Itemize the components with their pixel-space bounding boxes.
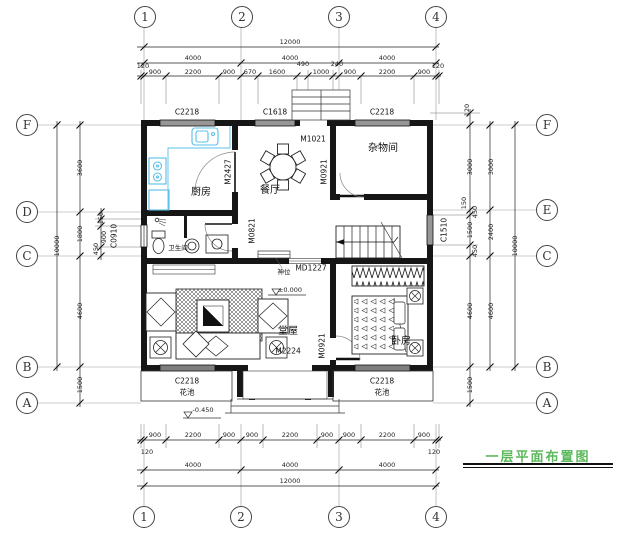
kitchen-corner-unit bbox=[149, 190, 169, 210]
dim-right-detail: 120 bbox=[464, 104, 471, 116]
axis-bubble-bottom-3: 3 bbox=[328, 506, 350, 528]
room-label-hall: 堂屋 bbox=[278, 327, 298, 337]
front-porch bbox=[225, 371, 345, 413]
label-door-m0921-bedroom: M0921 bbox=[318, 333, 326, 359]
window-c2218-bottom-left bbox=[160, 365, 215, 371]
dim-top-detail: 120 bbox=[137, 63, 149, 70]
toilet-tank bbox=[152, 231, 165, 238]
dim-top-axis: 4000 bbox=[282, 55, 299, 62]
dim-top-detail: 900 bbox=[418, 69, 430, 76]
stairs bbox=[336, 222, 402, 258]
window-c1510-right bbox=[427, 215, 433, 245]
dim-left-detail: 150 bbox=[98, 212, 105, 224]
label-window-c2218-top-left: C2218 bbox=[175, 108, 199, 116]
drawing-title-underline bbox=[463, 463, 613, 468]
dim-bottom-detail: 900 bbox=[343, 432, 355, 439]
dim-right-detail: 1500 bbox=[467, 377, 474, 394]
axis-bubble-right-a: A bbox=[536, 392, 558, 414]
dim-bottom-detail: 2200 bbox=[282, 432, 299, 439]
dim-top-detail: 2200 bbox=[185, 69, 202, 76]
toilet bbox=[153, 239, 164, 254]
dim-left-detail: 450 bbox=[93, 243, 100, 255]
dim-left-overall: 10000 bbox=[54, 236, 61, 257]
wardrobe bbox=[352, 266, 424, 286]
dim-right-detail: 1500 bbox=[467, 222, 474, 239]
dim-top-detail: 490 bbox=[297, 61, 309, 68]
room-label-bedroom: 卧房 bbox=[391, 337, 411, 347]
dim-bottom-detail: 900 bbox=[246, 432, 258, 439]
label-flower-bed-left: 花池 bbox=[180, 388, 195, 396]
label-window-c0910: C0910 bbox=[110, 224, 118, 248]
dim-top-detail: 240 bbox=[331, 61, 343, 68]
dim-right-detail: 450 bbox=[472, 206, 479, 218]
dim-left-detail: 900 bbox=[101, 231, 108, 243]
dim-top-detail: 900 bbox=[149, 69, 161, 76]
dim-bottom-edge: 120 bbox=[141, 449, 153, 456]
dim-bottom-detail: 900 bbox=[321, 432, 333, 439]
dim-bottom-detail: 900 bbox=[149, 432, 161, 439]
label-door-m2427: M2427 bbox=[224, 159, 232, 185]
axis-bubble-top-4: 4 bbox=[425, 6, 447, 28]
label-flower-bed-right: 花池 bbox=[375, 388, 390, 396]
shower-head bbox=[155, 218, 159, 222]
label-window-c2218-top-right: C2218 bbox=[370, 108, 394, 116]
living-room-furniture bbox=[146, 265, 288, 359]
label-window-c1618-top: C1618 bbox=[263, 108, 287, 116]
axis-bubble-top-1: 1 bbox=[134, 6, 156, 28]
plan-drawing bbox=[0, 0, 640, 558]
label-window-c2218-bottom-right: C2218 bbox=[370, 377, 394, 385]
dim-top-detail: 1000 bbox=[313, 69, 330, 76]
plant-left bbox=[150, 337, 171, 358]
dim-right-axis: 4600 bbox=[488, 303, 495, 320]
room-label-dining: 餐厅 bbox=[260, 186, 280, 196]
window-c2218-top-right bbox=[355, 120, 410, 126]
label-window-c1510: C1510 bbox=[440, 218, 448, 242]
dim-top-detail: 900 bbox=[344, 69, 356, 76]
dim-right-detail: 150 bbox=[461, 197, 468, 209]
dim-bottom-detail: 900 bbox=[223, 432, 235, 439]
label-shrine: 神位 bbox=[278, 269, 291, 276]
dim-bottom-axis: 4000 bbox=[185, 462, 202, 469]
label-door-md1227: MD1227 bbox=[295, 264, 326, 272]
room-label-kitchen: 厨房 bbox=[191, 188, 211, 198]
bedroom-furniture bbox=[352, 266, 424, 356]
door-storage-m0921 bbox=[340, 173, 364, 197]
dim-bottom-overall: 12000 bbox=[280, 478, 301, 485]
label-door-m1021: M1021 bbox=[300, 135, 326, 143]
dim-left-axis: 1800 bbox=[77, 226, 84, 243]
dim-right-detail: 450 bbox=[472, 245, 479, 257]
dim-top-axis: 4000 bbox=[185, 55, 202, 62]
axis-bubble-right-c: C bbox=[536, 245, 558, 267]
axis-bubble-bottom-4: 4 bbox=[425, 506, 447, 528]
dim-right-axis: 2400 bbox=[488, 224, 495, 241]
back-steps bbox=[292, 90, 350, 120]
dim-right-detail: 3000 bbox=[467, 159, 474, 176]
dim-bottom-detail: 2200 bbox=[379, 432, 396, 439]
kitchen-fixtures bbox=[149, 126, 230, 210]
label-door-m2224: M2224 bbox=[275, 347, 301, 355]
dining-table-set bbox=[260, 144, 305, 190]
label-door-m0921-storage: M0921 bbox=[320, 159, 328, 185]
window-c1618-top bbox=[255, 120, 295, 126]
level-mark-outdoor: -0.450 bbox=[193, 407, 214, 414]
label-window-c2218-bottom-left: C2218 bbox=[175, 377, 199, 385]
dim-bottom-edge: 120 bbox=[428, 449, 440, 456]
axis-bubble-left-d: D bbox=[16, 201, 38, 223]
axis-bubble-right-f: F bbox=[536, 114, 558, 136]
axis-bubble-left-c: C bbox=[16, 245, 38, 267]
window-c2218-bottom-right bbox=[355, 365, 410, 371]
dim-right-axis: 3000 bbox=[488, 159, 495, 176]
axis-bubble-right-b: B bbox=[536, 356, 558, 378]
axis-bubble-left-b: B bbox=[16, 356, 38, 378]
axis-bubble-left-a: A bbox=[16, 392, 38, 414]
dim-left-axis: 1500 bbox=[77, 377, 84, 394]
window-c2218-top-left bbox=[160, 120, 215, 126]
axis-bubble-top-3: 3 bbox=[328, 6, 350, 28]
dim-top-detail: 2200 bbox=[379, 69, 396, 76]
level-mark-indoor: ±0.000 bbox=[278, 287, 302, 294]
floor-plan-canvas: 1 2 3 4 1 2 3 4 F D C B A F E C B A 1200… bbox=[0, 0, 640, 558]
axis-bubble-right-e: E bbox=[536, 199, 558, 221]
axis-bubble-bottom-2: 2 bbox=[230, 506, 252, 528]
axis-bubble-bottom-1: 1 bbox=[133, 506, 155, 528]
dim-top-detail: 120 bbox=[432, 63, 444, 70]
dining-table bbox=[270, 154, 296, 180]
dim-top-detail: 900 bbox=[223, 69, 235, 76]
dim-left-axis: 3600 bbox=[77, 160, 84, 177]
dim-top-overall: 12000 bbox=[280, 39, 301, 46]
dim-bottom-axis: 4000 bbox=[379, 462, 396, 469]
dim-left-axis: 4600 bbox=[77, 303, 84, 320]
window-c0910-left bbox=[141, 225, 147, 247]
dim-right-detail: 4600 bbox=[467, 303, 474, 320]
axis-bubble-left-f: F bbox=[16, 114, 38, 136]
dim-top-axis: 4000 bbox=[379, 55, 396, 62]
pillow bbox=[394, 302, 405, 324]
room-label-storage: 杂物间 bbox=[368, 144, 398, 154]
dim-right-overall: 10000 bbox=[512, 236, 519, 257]
dim-top-detail: 670 bbox=[244, 69, 256, 76]
axis-bubble-top-2: 2 bbox=[231, 6, 253, 28]
dim-bottom-detail: 900 bbox=[418, 432, 430, 439]
dim-bottom-detail: 2200 bbox=[185, 432, 202, 439]
dim-top-detail: 1600 bbox=[269, 69, 286, 76]
nightstand-top bbox=[407, 288, 423, 304]
room-label-bath: 卫生间 bbox=[168, 245, 188, 252]
dim-bottom-axis: 4000 bbox=[282, 462, 299, 469]
label-door-m0821: M0821 bbox=[248, 218, 256, 244]
